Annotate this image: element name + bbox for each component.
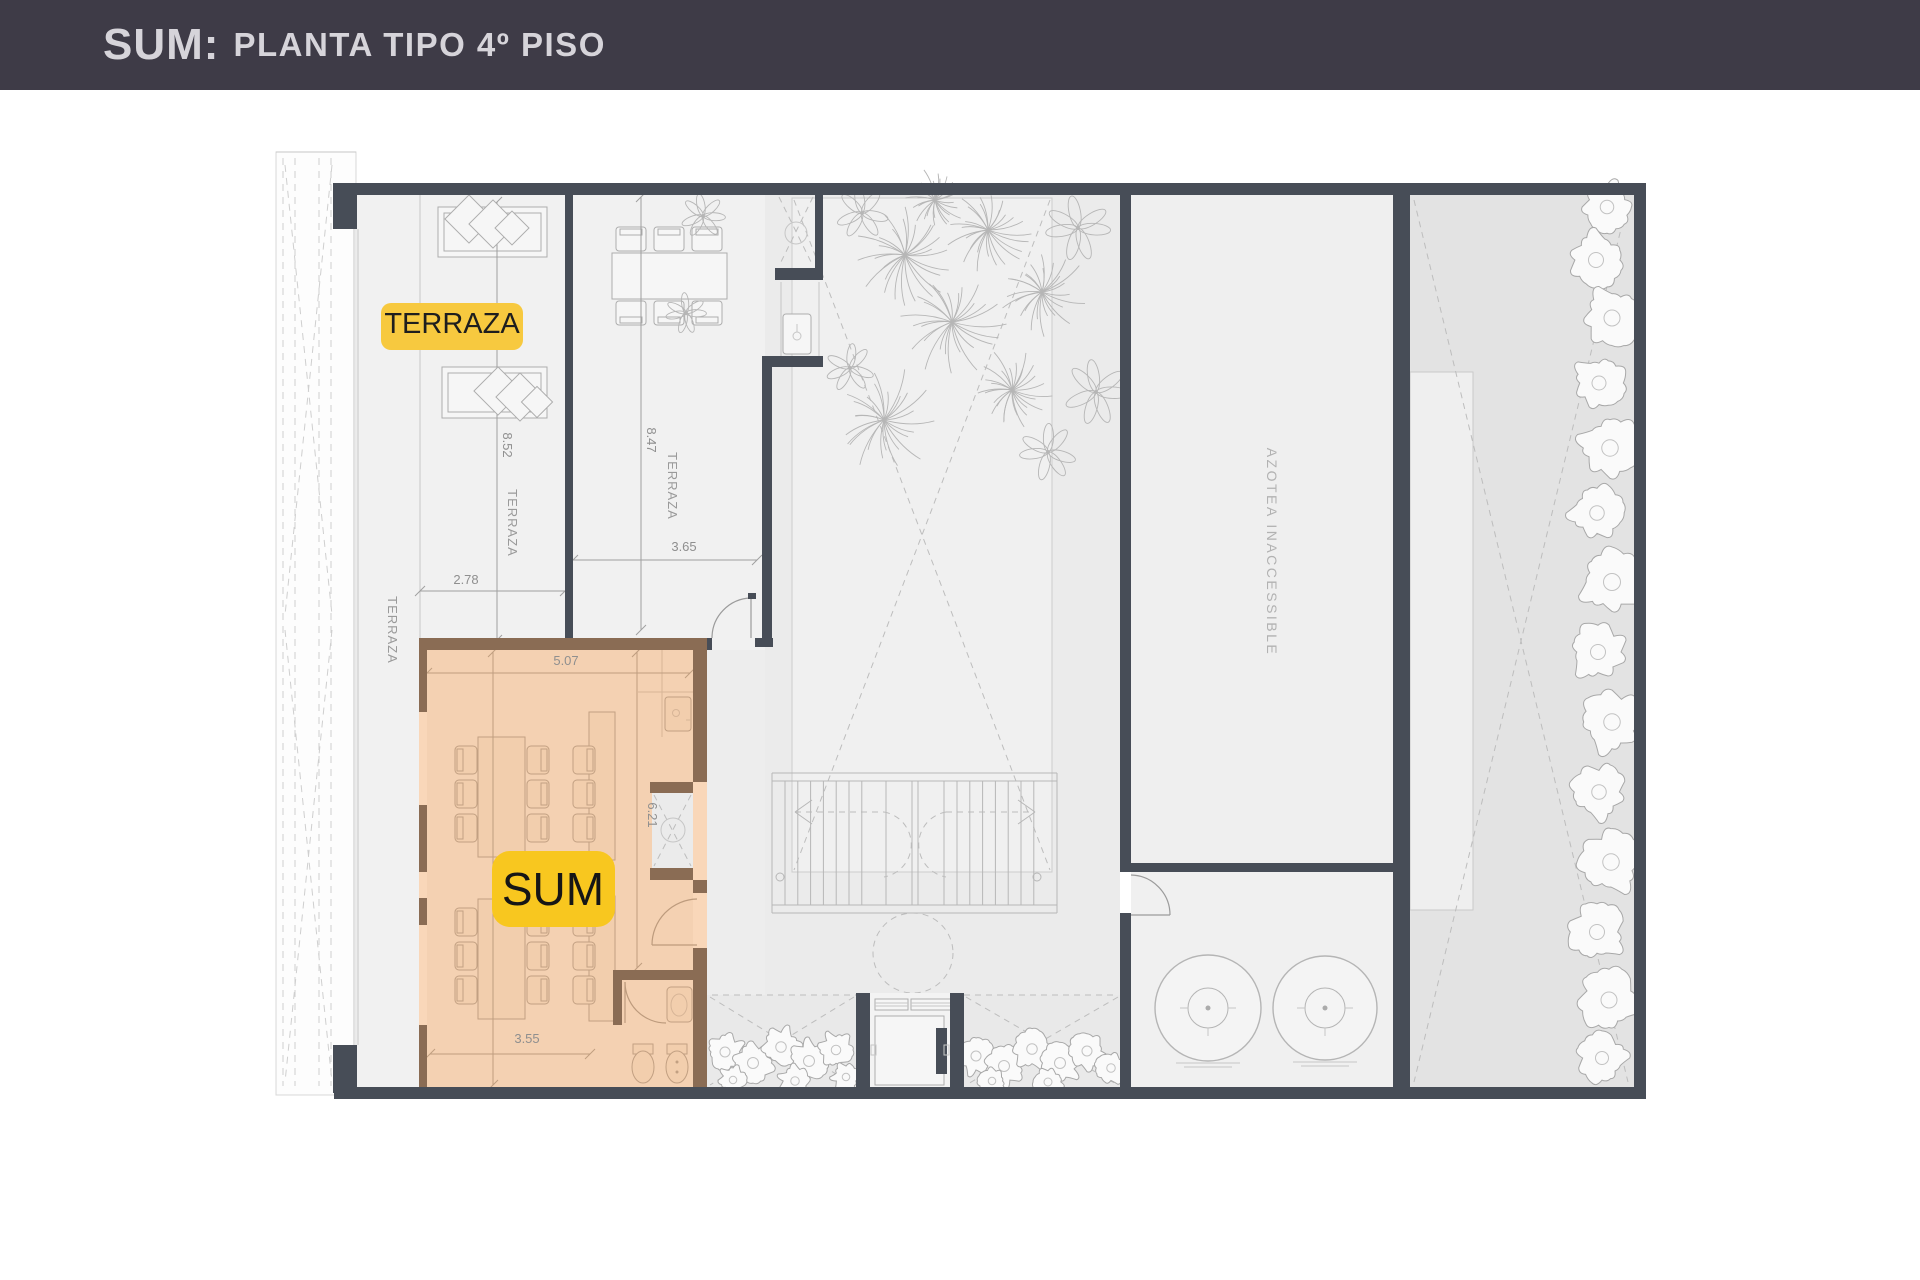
floor-plan-page: SUM: PLANTA TIPO 4º PISO [0, 0, 1920, 1280]
dim-sum-height-mid: 6.21 [645, 802, 660, 827]
dining-chair [654, 227, 684, 251]
dim-terraza-left-width: 2.78 [453, 572, 478, 587]
label-terraza-mid: TERRAZA [505, 489, 520, 557]
dim-sum-width-top: 5.07 [553, 653, 578, 668]
elevator-counterweight [936, 1028, 947, 1074]
label-terraza-left: TERRAZA [385, 596, 400, 664]
dim-terraza-dining-height: 8.47 [644, 427, 659, 452]
dim-sum-width-bottom: 3.55 [514, 1031, 539, 1046]
elevator [856, 993, 964, 1087]
dim-terraza-dining-width: 3.65 [671, 539, 696, 554]
dim-terraza-mid-height: 8.52 [500, 432, 515, 457]
floor-plan-drawing: 8.52 TERRAZA 2.78 TERRAZA 8.47 TERRAZA 3… [0, 0, 1920, 1280]
courtyard-roof-plane [792, 198, 1052, 872]
terraza-badge-label: TERRAZA [384, 308, 520, 340]
garden-plane [1410, 372, 1473, 910]
sum-badge-label: SUM [502, 863, 604, 915]
dining-table [612, 227, 727, 325]
dining-chair [692, 301, 722, 325]
label-terraza-dining: TERRAZA [665, 452, 680, 520]
label-azotea: AZOTEA INACCESSIBLE [1264, 448, 1280, 657]
balcony-strip [357, 638, 419, 1087]
room-azotea [1131, 195, 1393, 863]
kitchen-sink [783, 314, 811, 354]
facade-strip [276, 152, 356, 1095]
